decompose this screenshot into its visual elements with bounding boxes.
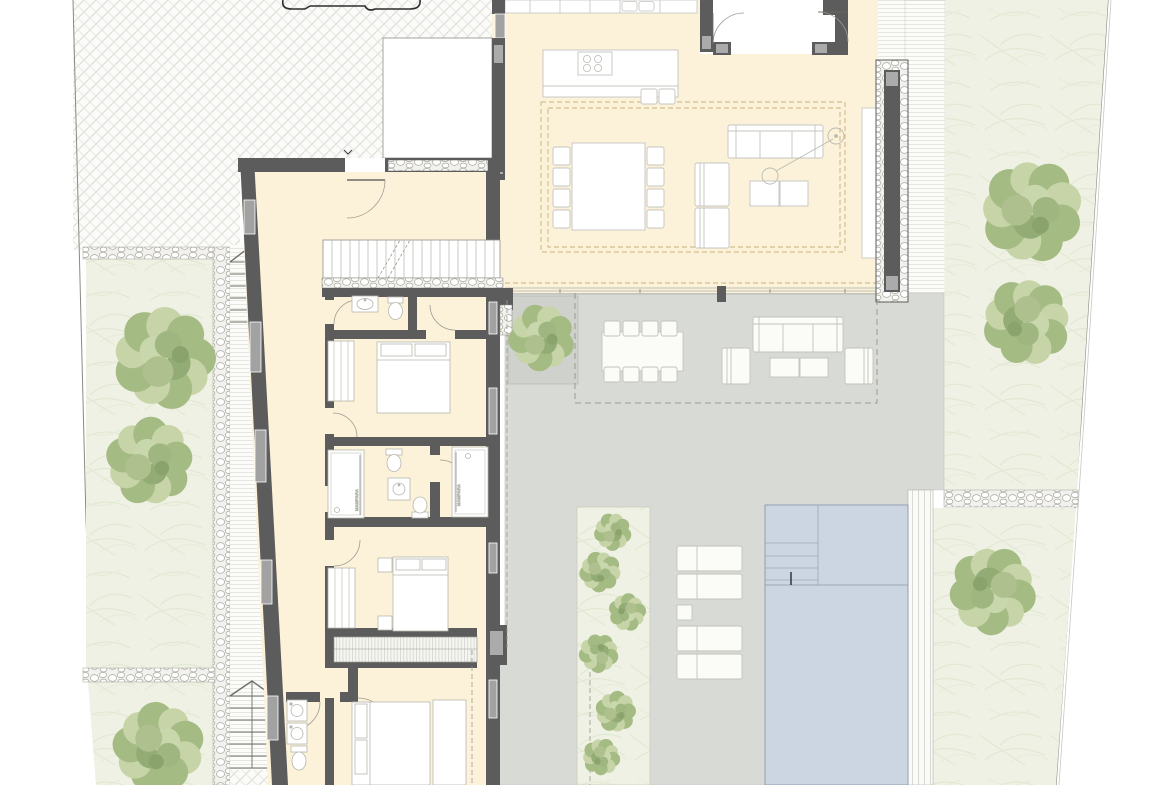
armchair (695, 208, 729, 248)
kitchen-counter (505, 0, 697, 13)
entry-opening (345, 158, 385, 172)
bar-stool (641, 89, 657, 104)
sun-lounger (677, 546, 742, 571)
wall-cap (716, 44, 728, 53)
toilet (388, 297, 403, 320)
floor-plan-canvas: MAMPARA MAMPARA (0, 0, 1170, 785)
stone-wall-right (944, 490, 1078, 507)
outdoor-sofa (753, 317, 843, 352)
wall-cap (490, 631, 503, 655)
shower-screen-label: MAMPARA (354, 489, 359, 511)
kitchen-sink-bowl (639, 2, 654, 12)
coffee-table (750, 181, 779, 206)
dryer (287, 723, 307, 744)
bed (352, 702, 430, 785)
outdoor-chair (661, 321, 677, 336)
outdoor-dining-set (602, 321, 683, 382)
outdoor-armchair (722, 348, 750, 384)
outdoor-chair (604, 321, 620, 336)
armchair (695, 163, 729, 206)
toilet (291, 746, 307, 770)
carport-canopy (383, 38, 492, 158)
entry-sill (388, 160, 488, 171)
glass-wall-mullion (717, 286, 726, 302)
wall-cap (494, 45, 503, 63)
sun-lounger (677, 626, 742, 651)
bidet (412, 497, 428, 518)
wall-cap (702, 36, 711, 49)
window-sill (500, 305, 512, 335)
bedroom-3 (352, 700, 466, 785)
closet (433, 700, 466, 785)
bed (393, 557, 448, 631)
site-plan-svg: MAMPARA MAMPARA (0, 0, 1170, 785)
outdoor-chair (642, 367, 658, 382)
side-table (378, 616, 392, 630)
outdoor-chair (623, 367, 639, 382)
side-table (378, 558, 392, 572)
outdoor-coffee-table (770, 358, 799, 377)
window-west (495, 14, 505, 38)
outdoor-chair (623, 321, 639, 336)
sun-lounger (677, 654, 742, 679)
pool-side-table (677, 605, 692, 620)
kitchen-island (543, 50, 678, 104)
sink (352, 296, 378, 312)
coffee-table (780, 181, 808, 206)
pool-deck (908, 490, 933, 785)
dining-table (572, 143, 645, 230)
bar-stool (659, 89, 675, 104)
outdoor-chair (604, 367, 620, 382)
wall-cap (815, 44, 827, 53)
feature-wall-pillar (876, 60, 908, 302)
washer (287, 700, 307, 721)
stone-wall-left-top (83, 247, 215, 259)
stone-wall-left-side (213, 247, 230, 785)
path-right (905, 0, 945, 295)
interior-staircase (322, 240, 503, 288)
pool (765, 505, 908, 785)
sun-lounger (677, 574, 742, 599)
toilet (386, 449, 402, 472)
kitchen-sink (622, 2, 637, 12)
cooktop (578, 52, 612, 75)
stone-wall-left-mid (83, 668, 215, 682)
wardrobe (328, 341, 354, 401)
vanity-sink (388, 478, 410, 500)
outdoor-dining-table (602, 332, 683, 371)
outdoor-armchair (845, 348, 873, 384)
outdoor-coffee-table (800, 358, 828, 377)
bed (377, 342, 450, 413)
outdoor-chair (642, 321, 658, 336)
shower-screen-label: MAMPARA (456, 484, 461, 506)
outdoor-chair (661, 367, 677, 382)
wardrobe (328, 568, 355, 628)
built-in-wardrobe (334, 637, 477, 662)
